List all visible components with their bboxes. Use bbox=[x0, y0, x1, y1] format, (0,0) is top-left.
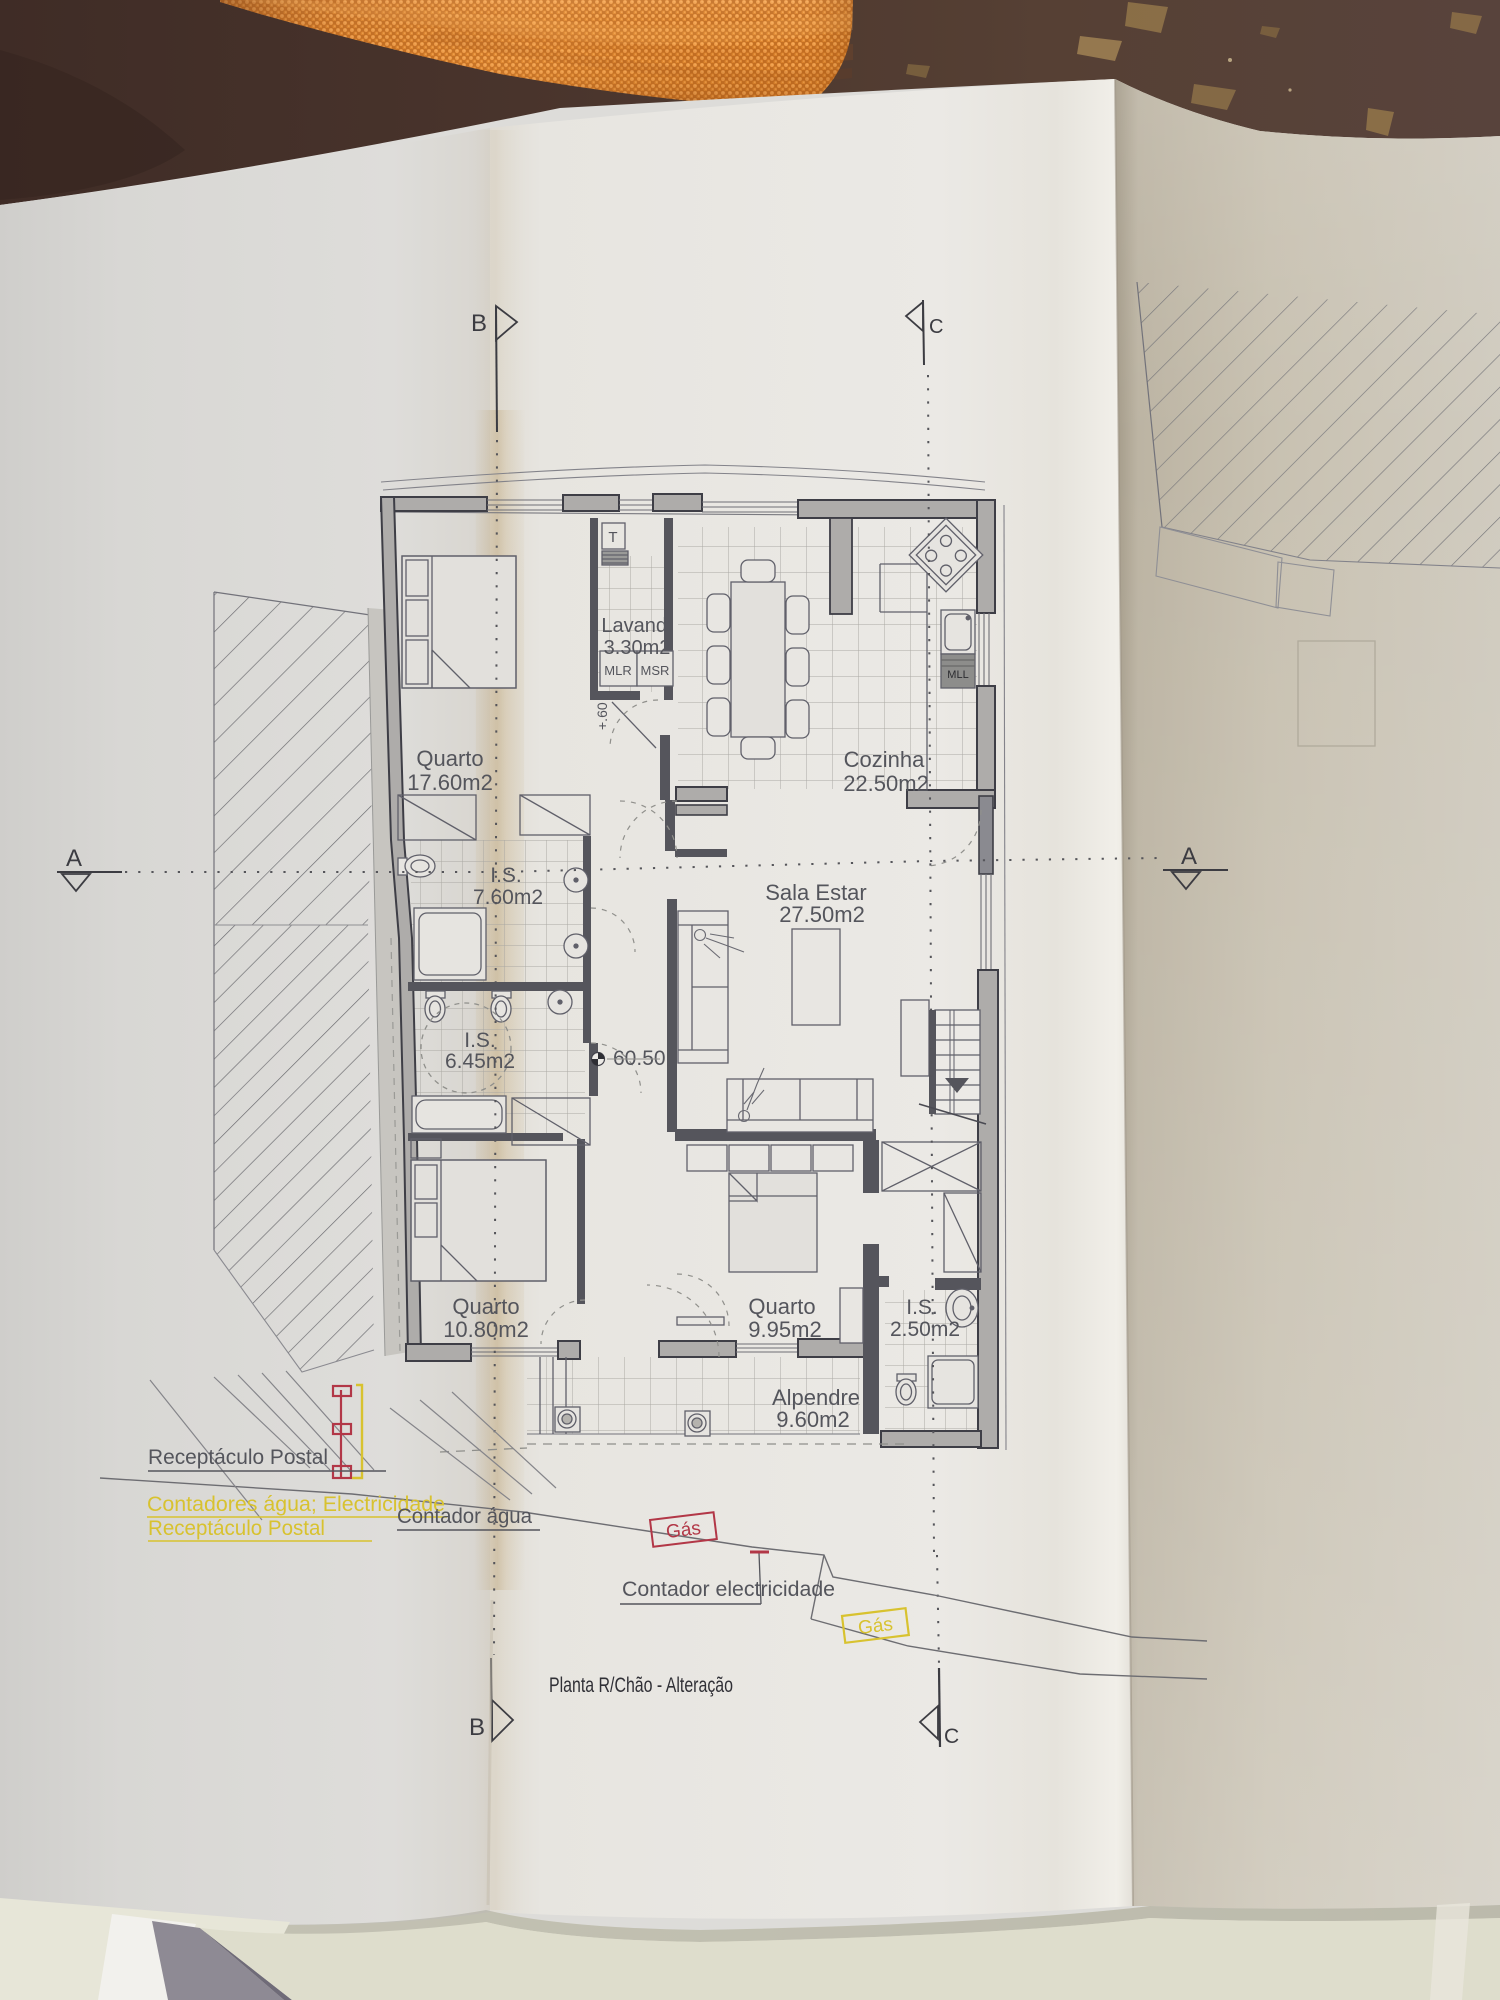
svg-text:Receptáculo Postal: Receptáculo Postal bbox=[148, 1446, 328, 1469]
svg-text:C: C bbox=[944, 1725, 959, 1748]
svg-text:17.60m2: 17.60m2 bbox=[407, 770, 493, 795]
svg-text:T: T bbox=[608, 529, 617, 546]
svg-text:9.60m2: 9.60m2 bbox=[776, 1407, 849, 1432]
svg-text:22.50m2: 22.50m2 bbox=[843, 771, 929, 796]
svg-text:C: C bbox=[929, 316, 943, 338]
svg-text:9.95m2: 9.95m2 bbox=[748, 1317, 821, 1342]
svg-text:Lavand.: Lavand. bbox=[601, 615, 672, 637]
svg-text:Planta R/Chão - Alteração: Planta R/Chão - Alteração bbox=[549, 1674, 733, 1697]
svg-text:Gás: Gás bbox=[665, 1518, 702, 1543]
svg-text:Quarto: Quarto bbox=[452, 1294, 519, 1319]
svg-text:3.30m2: 3.30m2 bbox=[604, 637, 671, 659]
svg-text:+.60: +.60 bbox=[594, 702, 610, 730]
svg-text:I.S.: I.S. bbox=[464, 1029, 496, 1052]
svg-text:MLR: MLR bbox=[604, 663, 631, 678]
svg-text:B: B bbox=[469, 1714, 485, 1741]
svg-text:Receptáculo Postal: Receptáculo Postal bbox=[148, 1517, 325, 1540]
svg-text:6.45m2: 6.45m2 bbox=[445, 1050, 515, 1073]
svg-text:Quarto: Quarto bbox=[748, 1294, 815, 1319]
svg-text:B: B bbox=[471, 310, 487, 337]
svg-text:A: A bbox=[1181, 843, 1197, 870]
svg-text:Cozinha: Cozinha bbox=[844, 747, 925, 772]
svg-text:10.80m2: 10.80m2 bbox=[443, 1317, 529, 1342]
svg-text:7.60m2: 7.60m2 bbox=[473, 886, 543, 909]
svg-text:2.50m2: 2.50m2 bbox=[890, 1318, 960, 1341]
svg-text:27.50m2: 27.50m2 bbox=[779, 902, 865, 927]
svg-text:A: A bbox=[66, 845, 82, 872]
svg-text:MLL: MLL bbox=[947, 669, 968, 681]
svg-text:Gás: Gás bbox=[857, 1614, 894, 1639]
svg-text:I.S.: I.S. bbox=[490, 864, 522, 887]
svg-text:Contador água: Contador água bbox=[397, 1505, 532, 1528]
svg-text:Quarto: Quarto bbox=[416, 746, 483, 771]
svg-text:MSR: MSR bbox=[641, 663, 670, 678]
svg-text:Contador electricidade: Contador electricidade bbox=[622, 1578, 835, 1601]
